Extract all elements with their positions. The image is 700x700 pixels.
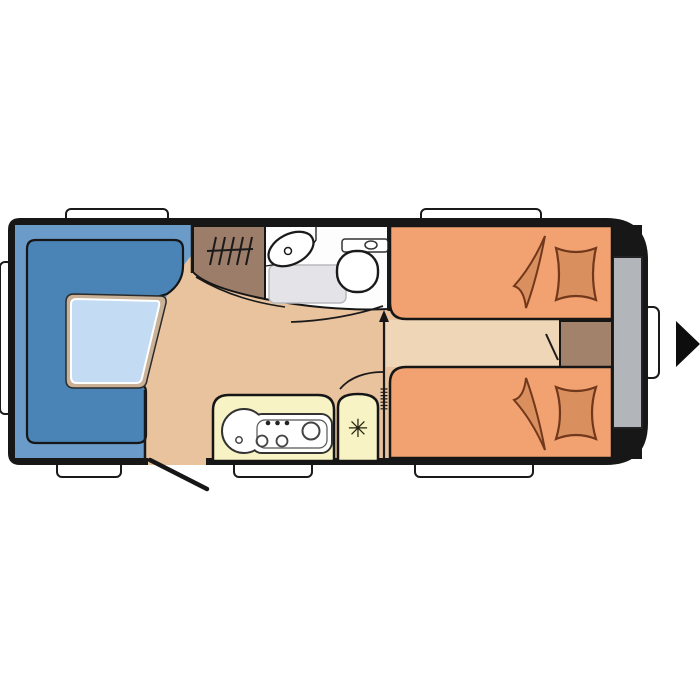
bed-bottom-pillow xyxy=(556,387,596,439)
floorplan-canvas: ✳ xyxy=(0,0,700,700)
bed-top-pillow xyxy=(556,248,596,300)
partition-hatching xyxy=(381,389,388,409)
single-bed-bottom xyxy=(390,367,612,458)
burner-dot xyxy=(266,421,271,426)
single-bed-top xyxy=(390,226,612,319)
bedside-storage-block xyxy=(560,321,612,367)
kitchen xyxy=(213,395,334,461)
shower-tray xyxy=(269,265,346,303)
toilet-bowl xyxy=(337,251,378,292)
washroom xyxy=(263,225,389,311)
rear-storage-panel xyxy=(613,257,642,428)
burner-dot xyxy=(275,421,280,426)
fridge-snowflake-icon: ✳ xyxy=(348,414,369,443)
dinette-lounge xyxy=(15,225,192,461)
bed-walkway xyxy=(386,320,560,367)
caravan-floorplan-image: ✳ xyxy=(0,0,700,700)
cistern-knob xyxy=(365,241,377,249)
burner-dot xyxy=(285,421,290,426)
basin-drain xyxy=(285,248,292,255)
